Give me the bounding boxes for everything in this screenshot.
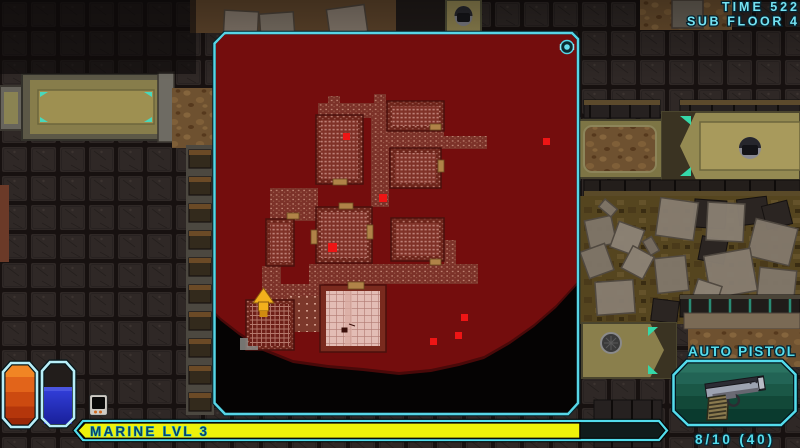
- svg-text:SUB FLOOR 4: SUB FLOOR 4: [687, 15, 798, 29]
- svg-text:8/10 (40): 8/10 (40): [695, 432, 773, 447]
- svg-text:AUTO PISTOL: AUTO PISTOL: [688, 344, 796, 359]
- svg-text:TIME 522: TIME 522: [722, 0, 798, 14]
- svg-text:MARINE LVL 3: MARINE LVL 3: [90, 424, 208, 439]
